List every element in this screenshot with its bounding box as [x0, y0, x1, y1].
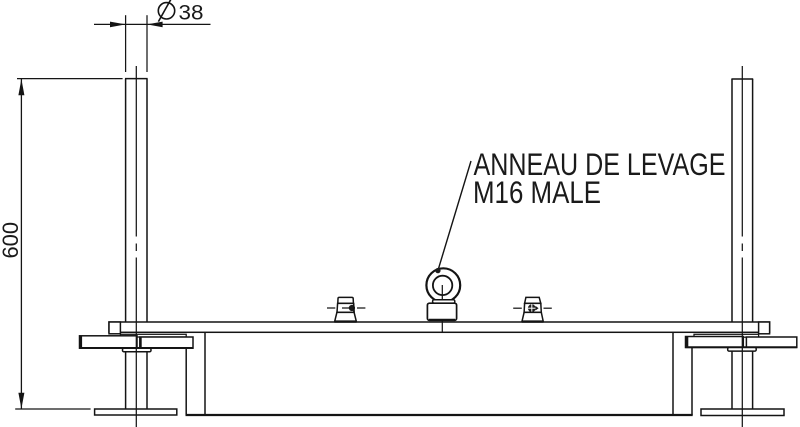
svg-text:38: 38	[179, 0, 204, 24]
svg-text:M16 MALE: M16 MALE	[473, 175, 601, 210]
svg-text:600: 600	[0, 222, 23, 259]
